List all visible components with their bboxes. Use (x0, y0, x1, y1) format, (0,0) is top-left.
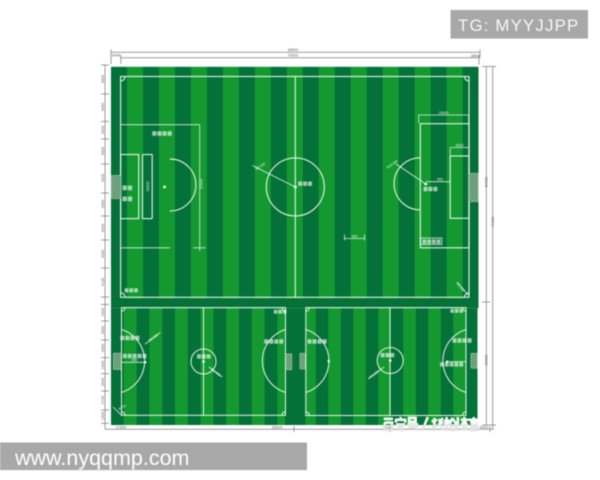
svg-text:2400: 2400 (101, 308, 105, 316)
svg-text:71400: 71400 (491, 217, 495, 228)
svg-text:68500: 68500 (288, 48, 299, 52)
svg-text:3300: 3300 (101, 200, 105, 208)
svg-text:2700: 2700 (101, 396, 105, 404)
svg-text:4000: 4000 (480, 426, 488, 430)
svg-text:26024: 26024 (272, 426, 283, 430)
svg-text:4000: 4000 (101, 250, 105, 258)
svg-text:2500: 2500 (101, 126, 105, 134)
svg-text:15000: 15000 (146, 182, 150, 192)
svg-text:3850: 3850 (471, 54, 479, 58)
svg-text:4000: 4000 (101, 174, 105, 182)
svg-text:www.nyqqmp.com: www.nyqqmp.com (14, 446, 189, 470)
svg-text:64000: 64000 (484, 177, 488, 188)
svg-text:4000: 4000 (101, 103, 105, 111)
svg-text:3400: 3400 (101, 224, 105, 232)
svg-text:2600: 2600 (101, 326, 105, 334)
svg-text:12320: 12320 (200, 179, 204, 189)
svg-text:900: 900 (437, 178, 443, 182)
svg-text:17500: 17500 (116, 425, 127, 429)
svg-text:TG: MYYJJPP: TG: MYYJJPP (458, 16, 579, 35)
svg-text:2300: 2300 (101, 361, 105, 369)
svg-text:15000: 15000 (439, 111, 449, 115)
svg-text:600: 600 (132, 358, 138, 362)
svg-text:4100: 4100 (101, 278, 105, 286)
svg-text:3948: 3948 (112, 54, 120, 58)
svg-text:1900: 1900 (101, 412, 105, 420)
svg-text:2500: 2500 (101, 344, 105, 352)
svg-text:3000: 3000 (101, 75, 105, 83)
svg-text:20000: 20000 (484, 355, 488, 366)
svg-text:3500: 3500 (101, 147, 105, 155)
svg-text:4000: 4000 (456, 144, 464, 148)
svg-text:2500: 2500 (101, 378, 105, 386)
svg-text:75000: 75000 (288, 54, 299, 58)
svg-text:500: 500 (352, 235, 358, 239)
